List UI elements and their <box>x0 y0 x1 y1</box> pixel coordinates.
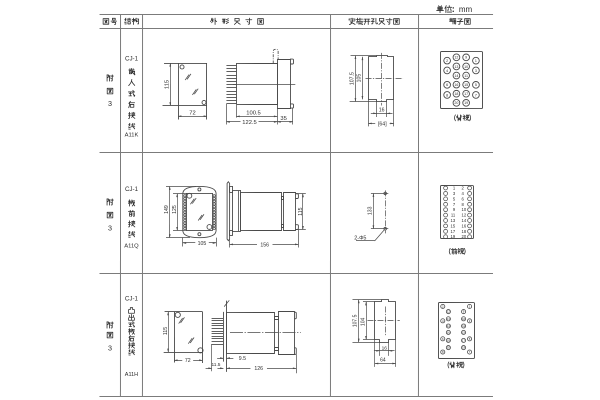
svg-text:17: 17 <box>462 338 466 342</box>
svg-text:7: 7 <box>475 93 477 97</box>
svg-text:18: 18 <box>454 92 458 96</box>
svg-text:3: 3 <box>108 99 112 108</box>
svg-text:10: 10 <box>461 207 466 212</box>
svg-text:12: 12 <box>454 56 458 60</box>
svg-text:2-Φ5: 2-Φ5 <box>354 236 366 242</box>
svg-text:72: 72 <box>189 111 195 117</box>
svg-text:9.5: 9.5 <box>239 356 246 362</box>
svg-text:13: 13 <box>447 317 451 321</box>
svg-text:11: 11 <box>464 74 468 78</box>
svg-text:16: 16 <box>461 223 466 228</box>
svg-text:[64]: [64] <box>378 121 387 127</box>
svg-text:16: 16 <box>447 330 451 334</box>
svg-text:16: 16 <box>379 108 385 114</box>
svg-text:2: 2 <box>446 59 448 63</box>
svg-text:3: 3 <box>108 223 112 232</box>
svg-text:15: 15 <box>464 83 468 87</box>
svg-text:15: 15 <box>462 330 466 334</box>
svg-text:9: 9 <box>453 207 456 212</box>
svg-text:20: 20 <box>447 346 451 350</box>
svg-text:105: 105 <box>198 241 207 247</box>
svg-text:20: 20 <box>454 101 458 105</box>
svg-text:11: 11 <box>451 213 456 218</box>
svg-text:105: 105 <box>357 74 363 83</box>
svg-text:4: 4 <box>462 191 465 196</box>
svg-text:6: 6 <box>461 196 464 201</box>
svg-text:11.5: 11.5 <box>211 362 220 368</box>
svg-text:16: 16 <box>382 345 388 351</box>
svg-text:7: 7 <box>453 202 456 207</box>
svg-text:133: 133 <box>368 206 374 215</box>
svg-text:125: 125 <box>172 205 178 214</box>
svg-text:2: 2 <box>462 186 465 191</box>
svg-text:mm: mm <box>459 5 473 14</box>
svg-text:1: 1 <box>475 59 477 63</box>
svg-text:6: 6 <box>446 83 448 87</box>
svg-text:CJ-1: CJ-1 <box>125 186 139 193</box>
svg-text:126: 126 <box>254 366 263 372</box>
svg-text:3: 3 <box>453 191 456 196</box>
svg-text:A11H: A11H <box>125 372 138 378</box>
svg-text:107.5: 107.5 <box>350 72 356 85</box>
svg-text:14: 14 <box>447 324 451 328</box>
svg-text:16: 16 <box>454 83 458 87</box>
svg-text:18: 18 <box>447 338 451 342</box>
svg-text:13: 13 <box>451 218 456 223</box>
svg-text:A11K: A11K <box>125 132 139 138</box>
svg-text:18: 18 <box>461 229 466 234</box>
svg-text:19: 19 <box>451 234 456 239</box>
svg-text:3: 3 <box>475 69 477 73</box>
svg-text:A11Q: A11Q <box>124 243 139 249</box>
svg-text:122.5: 122.5 <box>242 120 257 126</box>
svg-text:17: 17 <box>464 92 468 96</box>
svg-text:19: 19 <box>464 101 468 105</box>
svg-text:115: 115 <box>164 80 170 89</box>
svg-text:11: 11 <box>462 324 465 328</box>
svg-text:115: 115 <box>163 327 169 335</box>
svg-text:35: 35 <box>280 116 286 122</box>
svg-text:107.5: 107.5 <box>353 314 359 327</box>
svg-text:10: 10 <box>464 65 468 69</box>
svg-text:15: 15 <box>451 223 456 228</box>
svg-text:156: 156 <box>260 242 269 248</box>
svg-text:72: 72 <box>185 358 191 364</box>
svg-text:8: 8 <box>461 202 464 207</box>
svg-text:12: 12 <box>461 213 466 218</box>
svg-text:8: 8 <box>446 93 448 97</box>
svg-text:5: 5 <box>475 83 477 87</box>
svg-text:9: 9 <box>465 56 467 60</box>
svg-text:1: 1 <box>453 186 456 191</box>
svg-text:12: 12 <box>447 310 451 314</box>
svg-text:3: 3 <box>108 343 112 352</box>
svg-text:10: 10 <box>462 317 466 321</box>
svg-text:19: 19 <box>462 346 466 350</box>
svg-text:115: 115 <box>298 207 304 215</box>
svg-text:CJ-1: CJ-1 <box>125 295 139 302</box>
svg-text:CJ-1: CJ-1 <box>125 55 139 62</box>
svg-text:4: 4 <box>446 69 448 73</box>
svg-text:64: 64 <box>380 358 386 364</box>
svg-text:100.5: 100.5 <box>246 111 261 117</box>
svg-text:5: 5 <box>453 196 456 201</box>
svg-text:20: 20 <box>461 234 466 239</box>
svg-text:13: 13 <box>454 65 458 69</box>
svg-text:14: 14 <box>461 218 466 223</box>
svg-text:17: 17 <box>451 229 456 234</box>
svg-text:14: 14 <box>454 74 458 78</box>
svg-text:104: 104 <box>360 318 366 327</box>
svg-text:149: 149 <box>164 205 170 214</box>
